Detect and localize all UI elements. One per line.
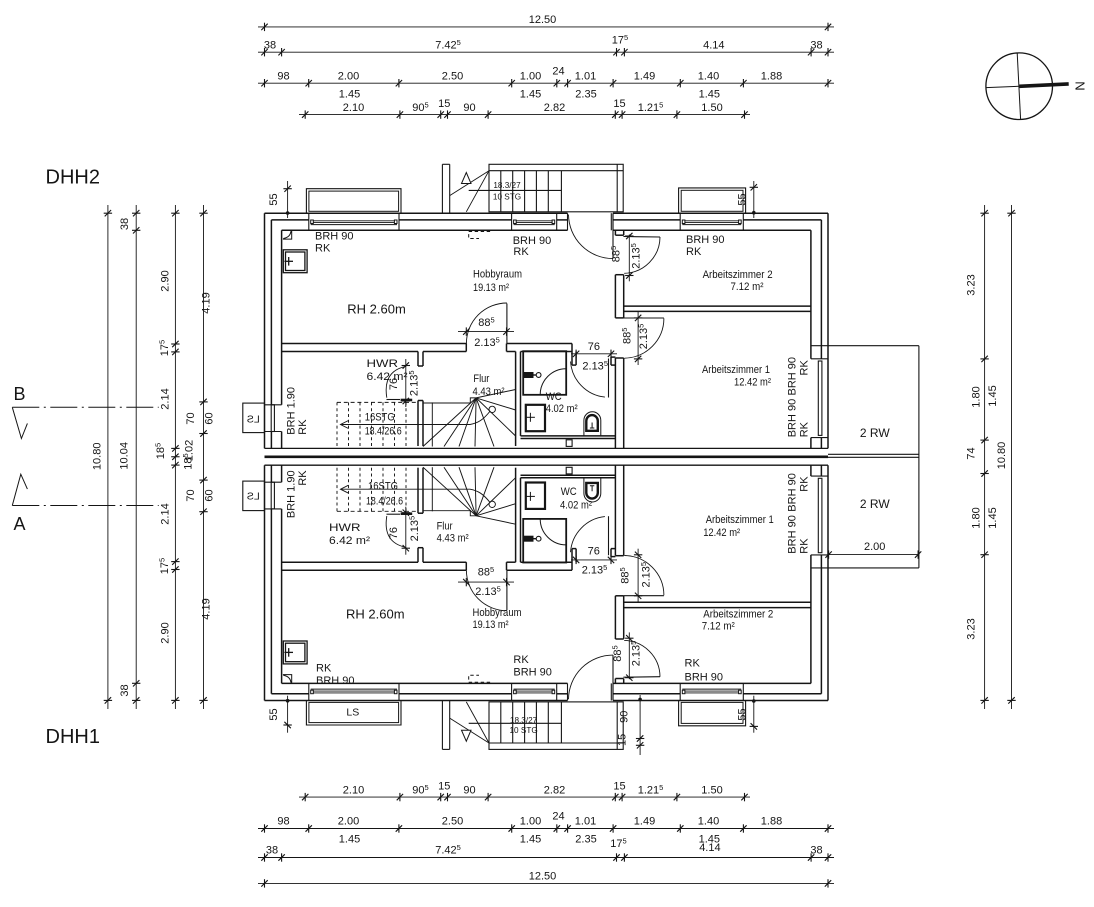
svg-text:2.90: 2.90 [160, 270, 172, 291]
svg-text:1.40: 1.40 [698, 816, 719, 828]
svg-text:2.10: 2.10 [343, 102, 364, 114]
svg-text:BRH 90: BRH 90 [787, 515, 799, 554]
svg-text:1.45: 1.45 [520, 89, 541, 101]
svg-text:19.13 m²: 19.13 m² [473, 619, 509, 631]
svg-text:3.23: 3.23 [966, 274, 978, 295]
svg-text:10.04: 10.04 [119, 442, 131, 470]
svg-text:12.42 m²: 12.42 m² [734, 377, 771, 389]
svg-text:2.00: 2.00 [338, 71, 359, 83]
svg-text:Arbeitszimmer 1: Arbeitszimmer 1 [702, 364, 770, 376]
svg-text:16STG: 16STG [365, 412, 395, 424]
svg-text:B: B [14, 384, 26, 404]
svg-text:A: A [14, 514, 26, 534]
svg-text:1.01: 1.01 [575, 816, 596, 828]
svg-text:55: 55 [737, 708, 749, 720]
svg-text:WC: WC [561, 486, 577, 498]
svg-text:1.88: 1.88 [761, 816, 782, 828]
svg-text:70: 70 [185, 412, 197, 424]
svg-text:38: 38 [119, 684, 131, 696]
svg-text:2.50: 2.50 [442, 816, 463, 828]
svg-text:4.02 m²: 4.02 m² [560, 500, 592, 512]
svg-text:24: 24 [552, 66, 564, 78]
svg-text:70: 70 [185, 489, 197, 501]
svg-text:BRH 90: BRH 90 [315, 231, 354, 243]
svg-text:1.02: 1.02 [184, 440, 196, 461]
svg-text:LS: LS [346, 707, 359, 719]
svg-text:2.35: 2.35 [575, 89, 596, 101]
svg-text:15: 15 [616, 734, 628, 746]
svg-text:15: 15 [438, 780, 450, 792]
svg-text:1.00: 1.00 [520, 816, 541, 828]
svg-text:7.12 m²: 7.12 m² [702, 621, 735, 633]
svg-text:2.82: 2.82 [544, 784, 565, 796]
svg-text:90: 90 [463, 102, 475, 114]
svg-text:76: 76 [388, 527, 400, 539]
svg-text:BRH 90: BRH 90 [787, 473, 799, 512]
svg-text:WC: WC [546, 391, 562, 403]
svg-text:1.45: 1.45 [699, 89, 720, 101]
svg-text:12.50: 12.50 [529, 871, 557, 883]
svg-text:18.4/26.6: 18.4/26.6 [366, 496, 403, 508]
svg-text:BRH 90: BRH 90 [787, 357, 799, 396]
svg-text:RK: RK [513, 246, 529, 258]
svg-text:RK: RK [798, 538, 810, 554]
svg-text:BRH 90: BRH 90 [685, 672, 724, 684]
svg-text:38: 38 [810, 845, 822, 857]
svg-text:DHH1: DHH1 [46, 726, 100, 748]
svg-text:BRH 1.90: BRH 1.90 [286, 470, 298, 518]
svg-text:Flur: Flur [473, 373, 489, 385]
svg-text:18.3/27: 18.3/27 [510, 716, 538, 725]
svg-text:1.49: 1.49 [634, 816, 655, 828]
svg-text:6.42 m²: 6.42 m² [329, 535, 370, 547]
svg-text:38: 38 [266, 845, 278, 857]
svg-text:1.88: 1.88 [761, 71, 782, 83]
svg-text:RK: RK [316, 663, 332, 675]
svg-text:2.35: 2.35 [575, 834, 596, 846]
svg-text:38: 38 [264, 40, 276, 52]
svg-text:RH 2.60m: RH 2.60m [346, 607, 405, 622]
svg-text:55: 55 [737, 193, 749, 205]
svg-text:18.3/27: 18.3/27 [493, 181, 521, 190]
svg-text:98: 98 [277, 71, 289, 83]
svg-text:24: 24 [552, 811, 564, 823]
svg-text:4.19: 4.19 [201, 292, 213, 313]
svg-text:4.14: 4.14 [703, 40, 724, 52]
svg-text:Arbeitszimmer 1: Arbeitszimmer 1 [706, 514, 774, 526]
svg-text:3.23: 3.23 [966, 618, 978, 639]
svg-text:Hobbyraum: Hobbyraum [473, 269, 522, 281]
svg-text:10 STG: 10 STG [509, 726, 537, 735]
svg-text:RK: RK [798, 421, 810, 437]
svg-text:RK: RK [798, 360, 810, 376]
svg-text:2.50: 2.50 [442, 71, 463, 83]
svg-text:76: 76 [588, 545, 600, 557]
svg-text:1.45: 1.45 [339, 89, 360, 101]
svg-text:1.80: 1.80 [971, 386, 983, 407]
svg-text:2 RW: 2 RW [860, 426, 890, 440]
svg-text:4.02 m²: 4.02 m² [546, 403, 578, 415]
svg-text:1.49: 1.49 [634, 71, 655, 83]
svg-text:N: N [1073, 81, 1088, 90]
svg-text:RK: RK [685, 658, 701, 670]
svg-text:LS: LS [247, 414, 260, 426]
svg-text:1.45: 1.45 [987, 385, 999, 406]
svg-text:DHH2: DHH2 [46, 167, 100, 189]
svg-text:RK: RK [297, 419, 309, 435]
svg-text:76: 76 [588, 341, 600, 353]
svg-text:BRH 90: BRH 90 [787, 399, 799, 438]
svg-text:LS: LS [247, 491, 260, 503]
svg-text:98: 98 [277, 816, 289, 828]
svg-text:1.45: 1.45 [339, 834, 360, 846]
svg-text:10 STG: 10 STG [493, 193, 521, 202]
svg-text:RH 2.60m: RH 2.60m [347, 302, 406, 317]
svg-text:1.40: 1.40 [698, 71, 719, 83]
svg-text:15: 15 [613, 98, 625, 110]
svg-text:Arbeitszimmer 2: Arbeitszimmer 2 [703, 269, 773, 281]
svg-text:BRH 90: BRH 90 [686, 234, 725, 246]
svg-text:60: 60 [204, 489, 216, 501]
svg-text:76: 76 [388, 378, 400, 390]
svg-text:38: 38 [810, 40, 822, 52]
svg-text:BRH 90: BRH 90 [316, 675, 355, 687]
svg-text:Flur: Flur [437, 521, 453, 533]
svg-text:7.12 m²: 7.12 m² [731, 281, 764, 293]
svg-text:38: 38 [119, 218, 131, 230]
svg-text:BRH 1.90: BRH 1.90 [286, 387, 298, 435]
svg-text:12.50: 12.50 [529, 14, 557, 26]
svg-text:Hobbyraum: Hobbyraum [473, 607, 522, 619]
svg-text:1.50: 1.50 [701, 102, 722, 114]
svg-text:55: 55 [268, 708, 280, 720]
svg-text:RK: RK [798, 476, 810, 492]
svg-text:RK: RK [513, 654, 529, 666]
svg-text:BRH 90: BRH 90 [513, 667, 552, 679]
svg-text:2.14: 2.14 [160, 503, 172, 524]
svg-text:19.13 m²: 19.13 m² [473, 282, 509, 294]
svg-text:74: 74 [966, 447, 978, 459]
svg-text:2 RW: 2 RW [860, 497, 890, 511]
svg-text:60: 60 [204, 412, 216, 424]
svg-text:15: 15 [613, 780, 625, 792]
svg-text:HWR: HWR [329, 522, 361, 534]
svg-text:18.4/26.6: 18.4/26.6 [365, 426, 402, 438]
svg-text:2.90: 2.90 [160, 622, 172, 643]
svg-text:2.82: 2.82 [544, 102, 565, 114]
svg-text:90: 90 [463, 784, 475, 796]
svg-text:90: 90 [618, 711, 630, 723]
svg-text:Arbeitszimmer 2: Arbeitszimmer 2 [703, 609, 773, 621]
svg-text:HWR: HWR [367, 358, 399, 370]
svg-text:RK: RK [686, 246, 702, 258]
svg-text:1.45: 1.45 [520, 834, 541, 846]
svg-text:4.14: 4.14 [699, 842, 720, 854]
svg-text:4.43 m²: 4.43 m² [473, 386, 505, 398]
svg-text:1.00: 1.00 [520, 71, 541, 83]
svg-text:12.42 m²: 12.42 m² [703, 527, 740, 539]
svg-text:10.80: 10.80 [92, 443, 104, 471]
svg-text:2.10: 2.10 [343, 784, 364, 796]
svg-text:16STG: 16STG [368, 481, 398, 493]
svg-text:4.19: 4.19 [201, 598, 213, 619]
svg-text:RK: RK [315, 243, 331, 255]
svg-text:4.43 m²: 4.43 m² [437, 533, 469, 545]
svg-text:2.14: 2.14 [160, 388, 172, 409]
svg-text:10.80: 10.80 [996, 442, 1008, 470]
svg-text:1.80: 1.80 [971, 507, 983, 528]
svg-text:55: 55 [268, 193, 280, 205]
svg-text:2.00: 2.00 [864, 541, 885, 553]
svg-text:15: 15 [438, 98, 450, 110]
svg-text:RK: RK [297, 470, 309, 486]
svg-text:1.01: 1.01 [575, 71, 596, 83]
svg-text:1.45: 1.45 [987, 507, 999, 528]
svg-text:1.50: 1.50 [701, 784, 722, 796]
svg-text:2.00: 2.00 [338, 816, 359, 828]
